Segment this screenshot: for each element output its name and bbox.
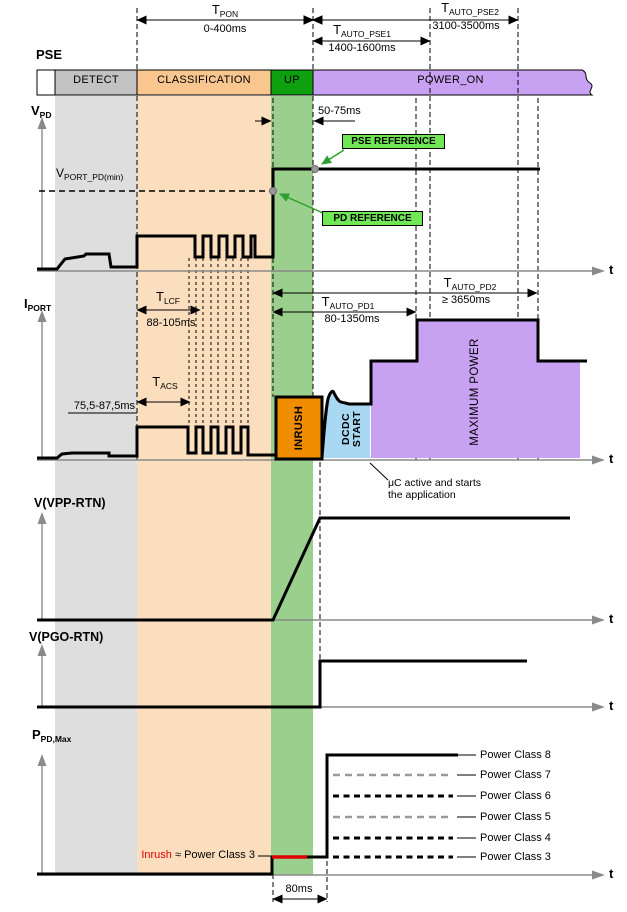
maximum-power-label: MAXIMUM POWER [469,338,481,445]
ppd-axis-label: PPD,Max [32,728,71,745]
t-auto-pse1-label: TAUTO_PSE1 [312,23,412,40]
power-class-lines [333,755,476,857]
iport-axis-label: IPORT [24,297,51,314]
pse-reference-dot [312,166,319,173]
power-class-4-label: Power Class 4 [480,832,551,845]
t-auto-pd1-range: 80-1350ms [302,313,402,326]
bar-segment-up: UP [271,74,313,92]
t-lcf-range: 88-105ms [141,317,201,330]
inrush-note-black: ≈ Power Class 3 [172,849,255,861]
power-class-7-label: Power Class 7 [480,769,551,782]
dcdc-start-label: DCDC START [341,411,363,447]
bar-segment-detect: DETECT [55,74,137,92]
t-pon-label: TPON [165,3,285,20]
t-lcf-label: TLCF [138,290,198,307]
bar-segment-power-on: POWER_ON [313,74,588,92]
t-auto-pd1-label: TAUTO_PD1 [298,295,398,312]
vpd-axis-label: VPD [31,104,51,121]
power-class-6-label: Power Class 6 [480,790,551,803]
t-auto-pse2-label: TAUTO_PSE2 [418,1,522,18]
inrush-window-label: 80ms [269,883,329,896]
t-auto-pse2-range: 3100-3500ms [414,20,518,33]
t-acs-label: TACS [135,375,195,392]
uc-note: μC active and starts the application [388,477,481,501]
power-class-3-label: Power Class 3 [480,851,551,864]
bar-segment-classification: CLASSIFICATION [137,74,271,92]
vvpp-t-label: t [609,611,613,626]
t-auto-pse1-range: 1400-1600ms [312,42,412,55]
vvpp-waveform [37,518,570,620]
power-class-5-label: Power Class 5 [480,811,551,824]
reference-arrows [280,150,344,213]
pulse-alignment-guides [189,258,248,426]
vpd-t-label: t [609,262,613,277]
uc-note-pointer [370,463,388,480]
iport-waveform [37,427,277,458]
iport-t-label: t [609,451,613,466]
poe-timing-diagram: PSE DETECT CLASSIFICATION UP POWER_ON TP… [0,0,627,912]
inrush-note-red: Inrush [141,849,172,861]
t-acs-range: 75,5-87,5ms [60,400,135,413]
vpgo-axis-label: V(PGO-RTN) [29,630,103,644]
pd-reference-box: PD REFERENCE [322,211,423,226]
vpd-waveform [37,169,540,269]
ppd-t-label: t [609,866,613,881]
pse-title: PSE [36,48,62,63]
vvpp-axis-label: V(VPP-RTN) [34,496,106,510]
t-pon-range: 0-400ms [165,23,285,36]
vpgo-t-label: t [609,698,613,713]
t-auto-pd2-range: ≥ 3650ms [416,294,516,307]
power-class-8-label: Power Class 8 [480,749,551,762]
inrush-note: Inrush ≈ Power Class 3 [135,849,255,862]
axis-arrowheads [38,117,606,880]
vpgo-waveform [37,661,527,707]
t-auto-pd2-label: TAUTO_PD2 [420,276,520,293]
axes [37,126,593,875]
pd-reference-dot [270,188,277,195]
pse-reference-box: PSE REFERENCE [342,134,445,149]
vport-pd-min-label: VPORT_PD(min) [56,167,123,183]
inrush-label: INRUSH [293,406,305,451]
up-window-label: 50-75ms [318,105,361,118]
